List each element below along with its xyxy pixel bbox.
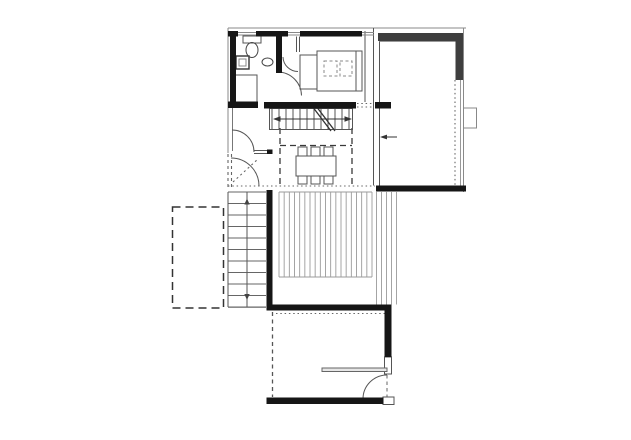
dining-chair-6 bbox=[324, 176, 333, 184]
top-wall-segment-c bbox=[300, 31, 362, 37]
east-window-box bbox=[464, 108, 477, 128]
exterior-stair-arrow-down bbox=[244, 294, 249, 300]
lower-door-threshold-step bbox=[383, 397, 394, 405]
bathroom-west-wall bbox=[230, 31, 236, 107]
dining-chair-5 bbox=[311, 176, 320, 184]
hall-door-arc bbox=[278, 72, 302, 96]
dining-chair-4 bbox=[298, 176, 307, 184]
lowerroom-partition-wall bbox=[322, 368, 387, 372]
top-wall-segment-b bbox=[256, 31, 288, 37]
deck-west-wall bbox=[267, 190, 273, 310]
rightroom-east-wall bbox=[456, 33, 464, 80]
entry-door-arc-upper bbox=[232, 130, 254, 152]
floor-plan-canvas bbox=[0, 0, 631, 440]
rightroom-west-stub-wall bbox=[375, 102, 391, 109]
entry-stub-wall bbox=[267, 150, 273, 155]
bed-headboard bbox=[300, 55, 317, 89]
dining-table bbox=[296, 156, 336, 176]
stair-arrowhead-left bbox=[273, 116, 281, 122]
dining-chair-1 bbox=[298, 147, 307, 156]
bed-pillow-2 bbox=[340, 61, 352, 76]
dining-chair-3 bbox=[324, 147, 333, 156]
rightroom-north-wall bbox=[378, 33, 462, 41]
bedroom-door-arc bbox=[283, 57, 298, 72]
lowerroom-south-wall bbox=[267, 398, 384, 405]
entry-door-arc-lower bbox=[231, 158, 259, 186]
shower bbox=[234, 75, 257, 103]
rightroom-south-wall bbox=[376, 186, 466, 192]
lower-door-arc bbox=[363, 375, 387, 399]
top-wall-segment-a bbox=[228, 31, 238, 37]
stair-arrowhead-right bbox=[345, 116, 353, 122]
hall-south-wall bbox=[228, 102, 258, 109]
lowerroom-east-wall bbox=[385, 305, 392, 358]
lowerroom-north-wall bbox=[267, 305, 392, 311]
stair-north-wall bbox=[264, 102, 356, 109]
vanity-cabinet bbox=[236, 56, 249, 69]
vanity-cabinet-inner bbox=[239, 59, 246, 66]
toilet-bowl bbox=[246, 43, 258, 58]
wash-basin bbox=[262, 58, 273, 66]
carport-dashed-outline bbox=[173, 207, 224, 308]
floor-plan bbox=[0, 0, 631, 440]
bed-pillow-1 bbox=[324, 61, 337, 76]
bathroom-east-wall bbox=[276, 36, 282, 73]
dining-chair-2 bbox=[311, 147, 320, 156]
exterior-stair-arrow-up bbox=[244, 199, 249, 205]
slider-arrowhead bbox=[380, 135, 387, 140]
toilet-tank bbox=[243, 36, 261, 43]
